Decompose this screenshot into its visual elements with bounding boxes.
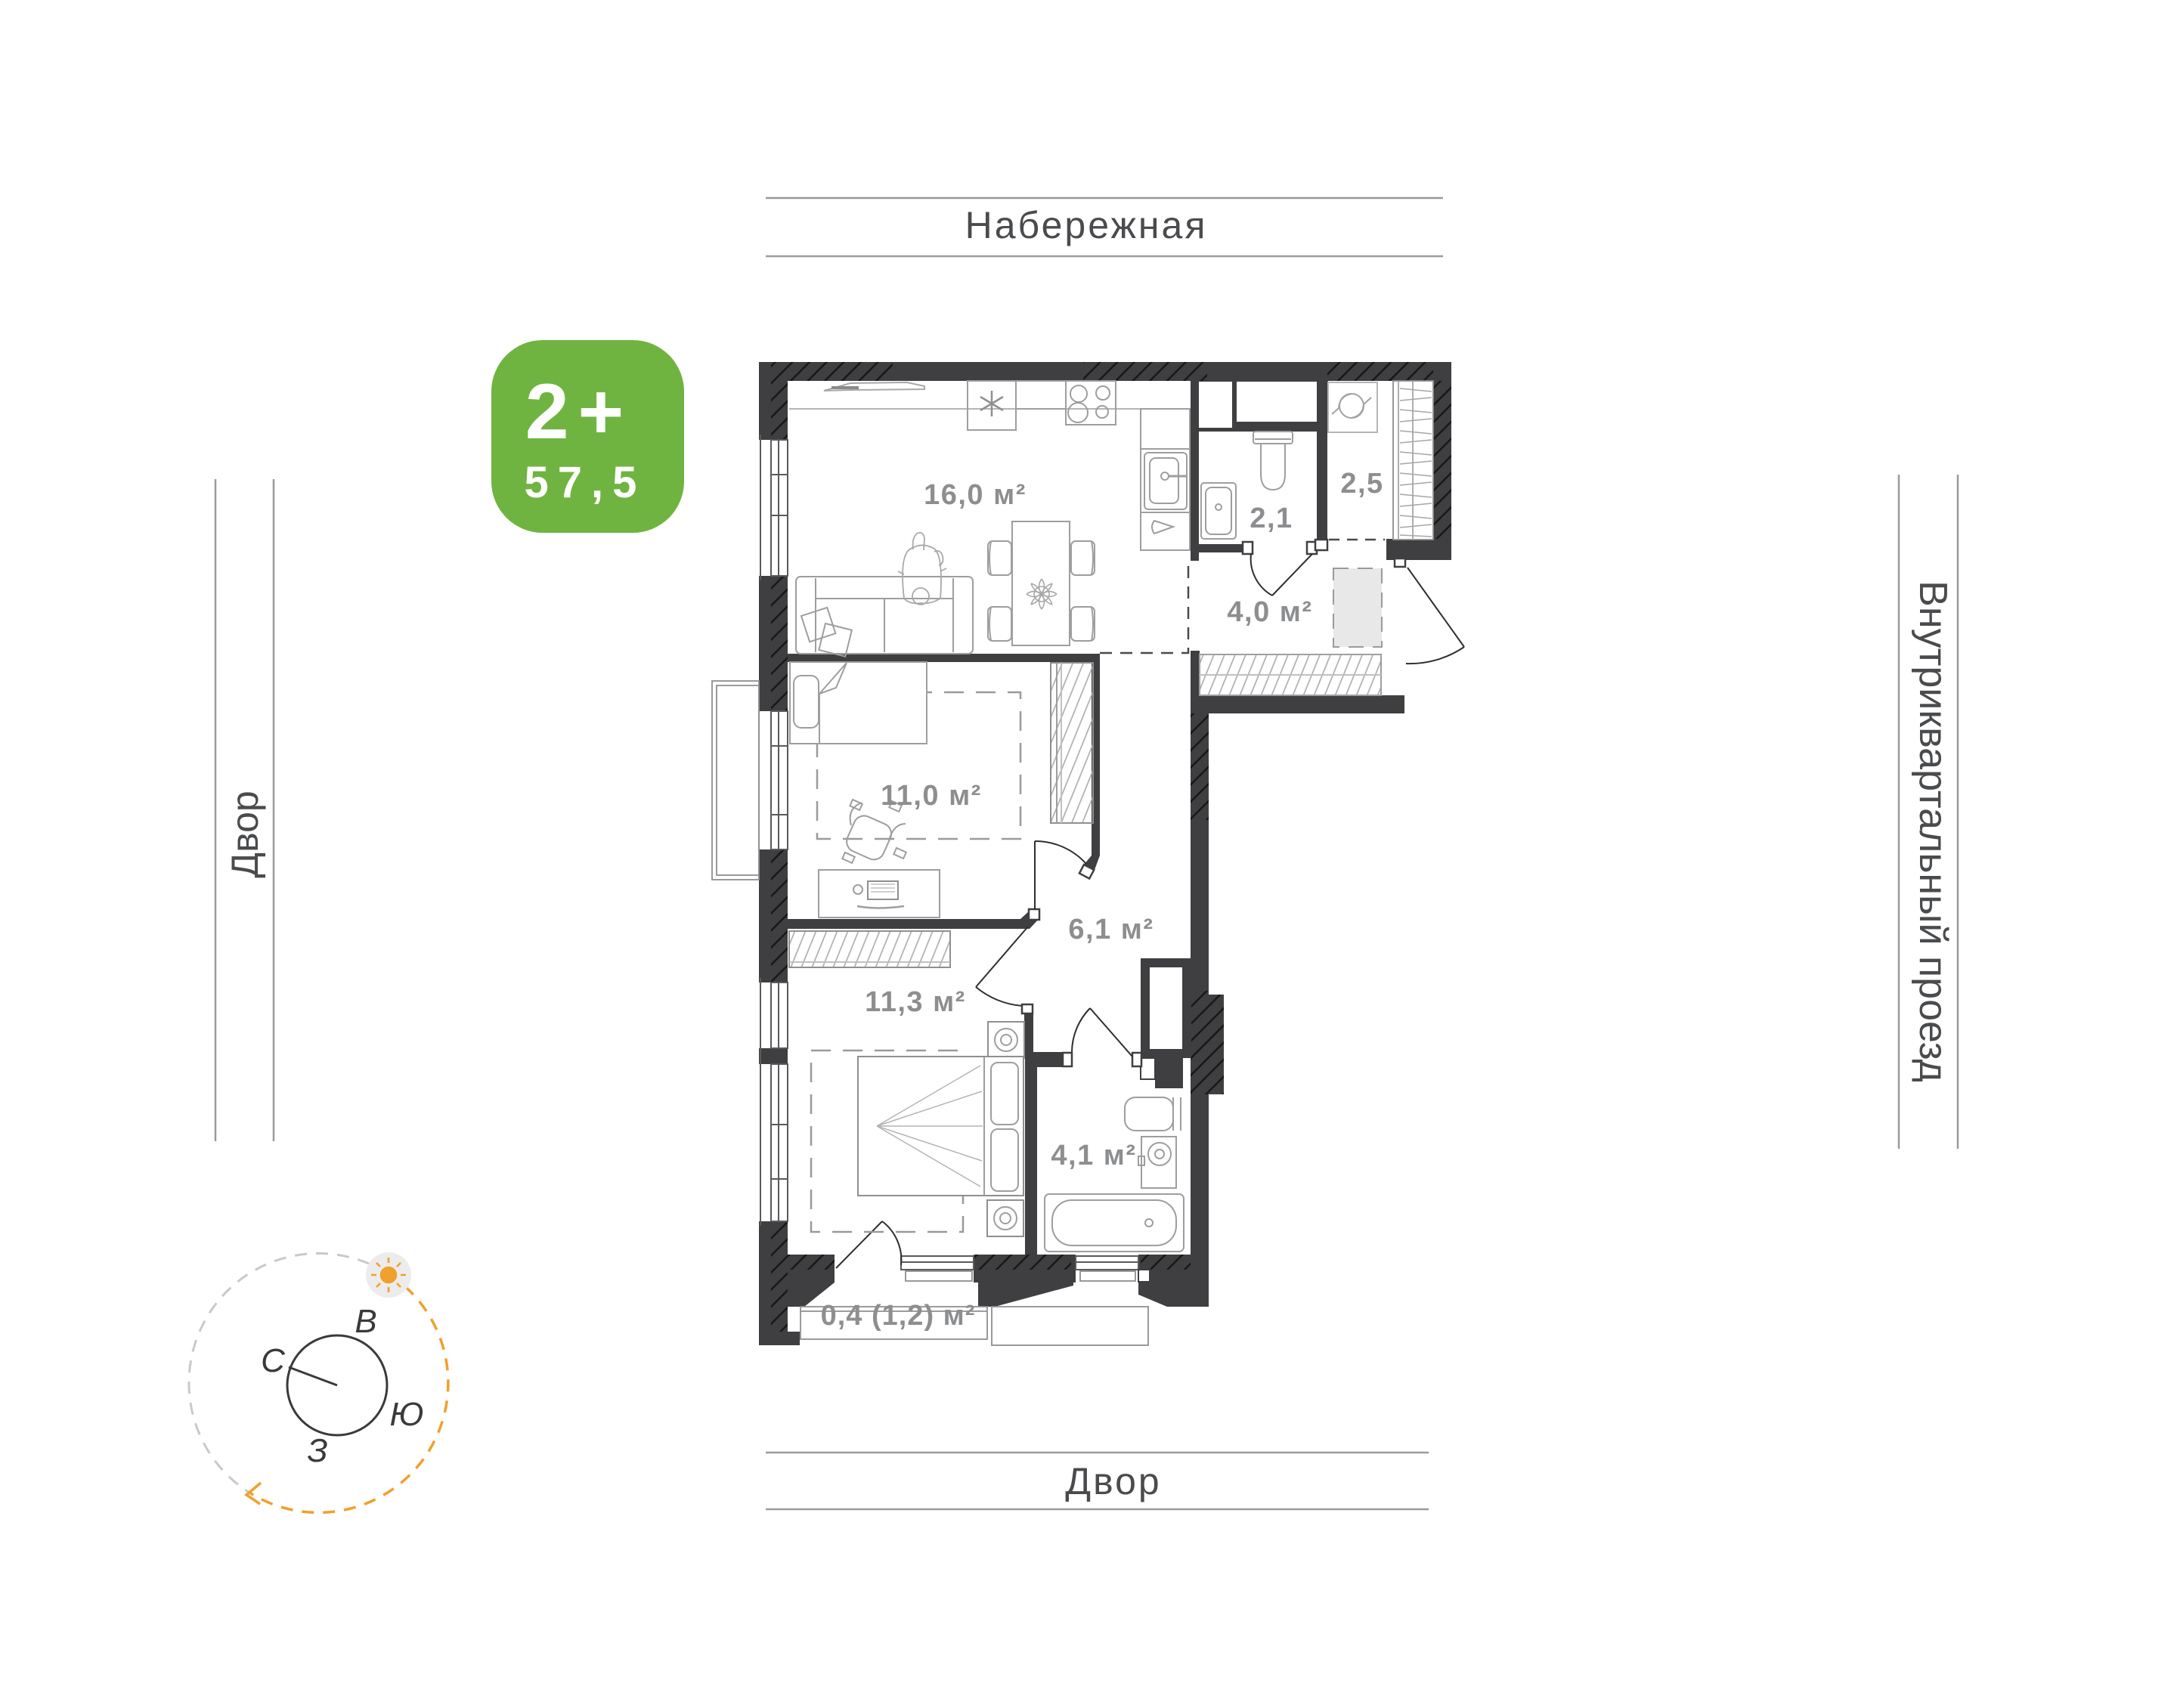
svg-text:Набережная: Набережная [965,204,1208,246]
svg-text:2,1: 2,1 [1250,503,1293,534]
svg-text:2+: 2+ [525,368,633,456]
svg-text:57,5: 57,5 [525,458,646,507]
svg-text:4,1 м²: 4,1 м² [1051,1140,1136,1171]
svg-text:В: В [355,1303,376,1340]
svg-text:З: З [307,1432,327,1469]
svg-text:Двор: Двор [1065,1460,1161,1502]
svg-text:Двор: Двор [224,791,266,877]
svg-text:С: С [261,1342,286,1379]
svg-text:Ю: Ю [390,1396,424,1433]
svg-text:4,0 м²: 4,0 м² [1227,596,1312,628]
svg-text:2,5: 2,5 [1340,468,1383,500]
svg-text:6,1 м²: 6,1 м² [1068,914,1154,945]
svg-text:11,0 м²: 11,0 м² [881,780,982,812]
svg-text:11,3 м²: 11,3 м² [865,986,966,1018]
svg-text:16,0 м²: 16,0 м² [924,479,1027,511]
svg-text:0,4 (1,2) м²: 0,4 (1,2) м² [821,1300,976,1332]
svg-text:Внутриквартальный проезд: Внутриквартальный проезд [1911,580,1955,1082]
